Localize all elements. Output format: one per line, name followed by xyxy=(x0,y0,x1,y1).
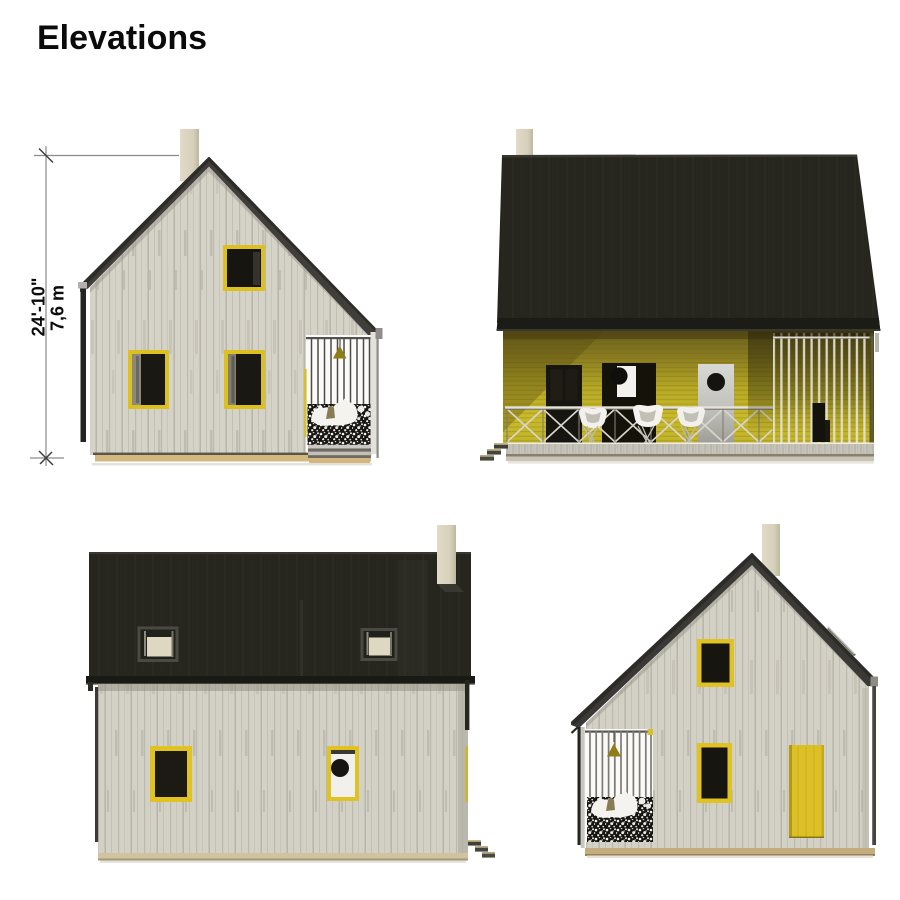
svg-text:7,6 m: 7,6 m xyxy=(48,285,68,331)
svg-text:24'-10": 24'-10" xyxy=(29,278,49,337)
svg-text:Elevations: Elevations xyxy=(37,19,207,57)
